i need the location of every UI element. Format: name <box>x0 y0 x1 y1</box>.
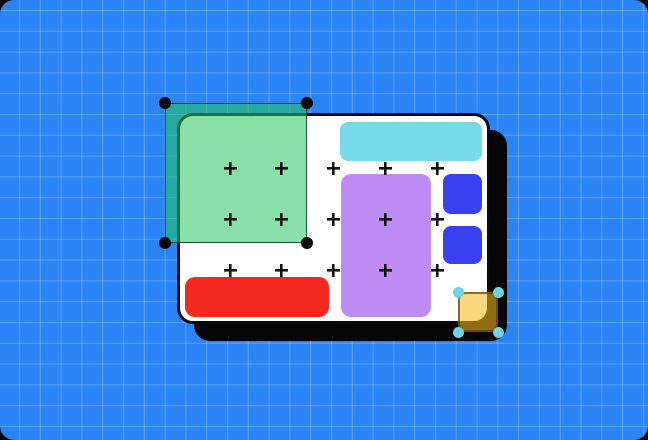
plus-mark <box>379 213 392 226</box>
plus-mark <box>431 213 444 226</box>
plus-mark <box>224 162 237 175</box>
yellow-selection-handle[interactable] <box>453 327 464 338</box>
plus-mark <box>379 264 392 277</box>
plus-mark <box>327 264 340 277</box>
yellow-selection-handle[interactable] <box>453 287 464 298</box>
yellow-selection-handle[interactable] <box>493 327 504 338</box>
plus-mark <box>275 264 288 277</box>
plus-mark <box>327 162 340 175</box>
blue-square-2[interactable] <box>443 226 482 264</box>
canvas-background <box>0 0 648 440</box>
red-bar[interactable] <box>185 277 329 317</box>
selected-yellow-square[interactable] <box>458 292 498 332</box>
green-selection-handle[interactable] <box>301 97 314 110</box>
yellow-selection-handle[interactable] <box>493 287 504 298</box>
plus-mark <box>275 162 288 175</box>
plus-mark <box>275 213 288 226</box>
cyan-bar[interactable] <box>340 122 482 161</box>
plus-mark <box>431 162 444 175</box>
purple-panel[interactable] <box>341 174 431 317</box>
plus-mark <box>327 213 340 226</box>
plus-mark <box>379 162 392 175</box>
illustration-stage <box>0 0 648 440</box>
plus-mark <box>431 264 444 277</box>
blue-square-1[interactable] <box>443 174 482 214</box>
plus-mark <box>224 264 237 277</box>
green-selection-handle[interactable] <box>159 237 172 250</box>
plus-mark <box>224 213 237 226</box>
